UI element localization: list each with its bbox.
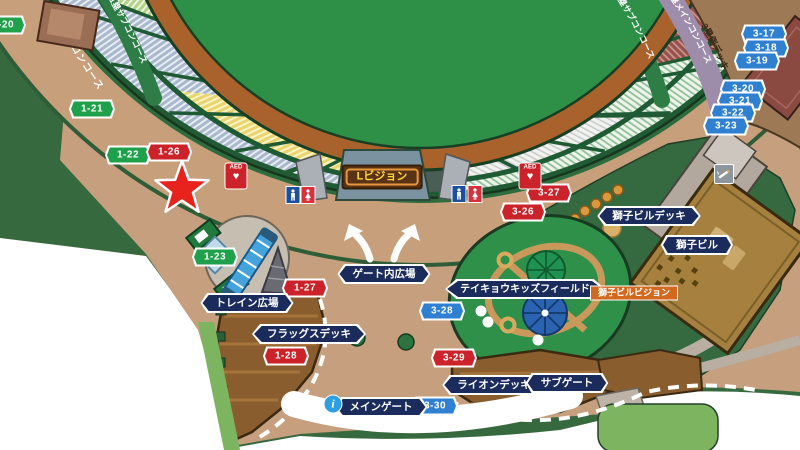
corner-shop [37,1,99,50]
l-vision-sign: Lビジョン [342,165,423,190]
gate-badge-3-26[interactable]: 3-26 [500,203,546,222]
gate-badge-1-28[interactable]: 1-28 [263,347,309,366]
label-train-plaza[interactable]: トレイン広場 [201,293,294,313]
shishi-vision-sign: 獅子ビルビジョン [590,286,678,301]
gate-badge-1-27[interactable]: 1-27 [282,279,328,298]
aed-icon: AED♥ [225,163,248,190]
label-main-gate[interactable]: メインゲート [335,397,428,417]
aed-icon: AED♥ [519,163,542,190]
tree [398,334,414,350]
label-kids-field[interactable]: テイキョウキッズフィールド [445,279,605,299]
gate-badge-3-23[interactable]: 3-23 [703,117,749,136]
gate-badge-1-26[interactable]: 1-26 [146,143,192,162]
gate-badge-1-20[interactable]: 1-20 [0,16,26,35]
info-icon: i [324,395,343,414]
label-shishi-deck[interactable]: 獅子ビルデッキ [597,206,701,226]
gate-badge-1-23[interactable]: 1-23 [192,248,238,267]
label-flags-deck[interactable]: フラッグスデッキ [252,324,366,344]
gate-badge-3-19[interactable]: 3-19 [734,52,780,71]
gate-badge-3-28[interactable]: 3-28 [419,302,465,321]
mens-restroom-icon [286,186,301,204]
womens-restroom-icon [468,185,483,203]
label-gate-plaza[interactable]: ゲート内広場 [338,264,431,284]
womens-restroom-icon [301,186,316,204]
gate-badge-3-29[interactable]: 3-29 [431,349,477,368]
grass-patch [598,404,718,450]
smoking-area-icon [714,164,734,184]
label-shishi-building[interactable]: 獅子ビル [661,235,733,255]
mens-restroom-icon [452,185,467,203]
stadium-map: 1塁メインコンコース 1塁サブコンコース 3塁サブコンコース 3塁メインコンコー… [0,0,800,450]
gate-badge-1-22[interactable]: 1-22 [105,146,151,165]
gate-badge-1-21[interactable]: 1-21 [69,100,115,119]
label-sub-gate[interactable]: サブゲート [526,373,609,393]
